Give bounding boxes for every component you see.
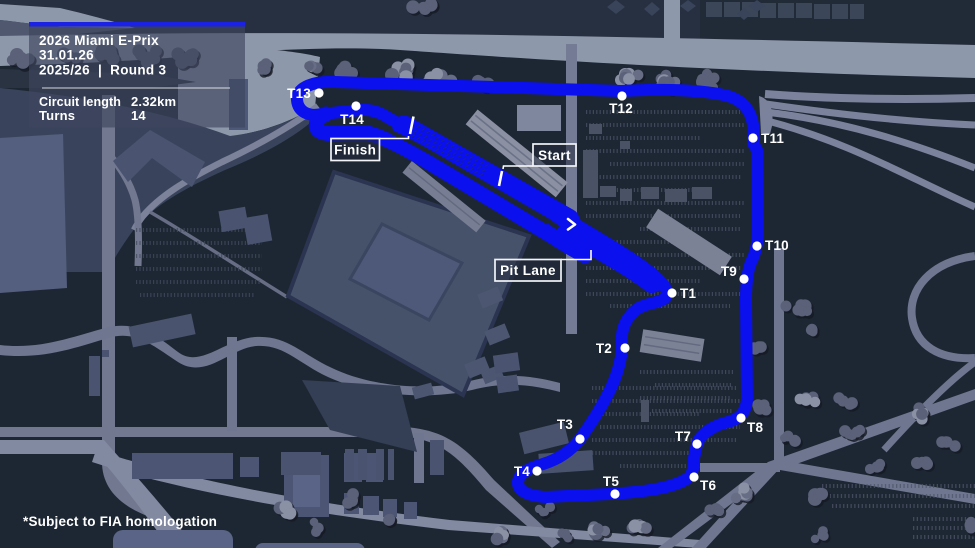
svg-text:T9: T9 bbox=[721, 264, 737, 279]
svg-text:T12: T12 bbox=[609, 101, 633, 116]
svg-text:Finish: Finish bbox=[334, 142, 376, 157]
svg-text:T1: T1 bbox=[680, 286, 696, 301]
svg-text:T10: T10 bbox=[765, 238, 789, 253]
svg-text:T5: T5 bbox=[603, 474, 619, 489]
svg-text:Pit Lane: Pit Lane bbox=[500, 263, 556, 278]
svg-text:31.01.26: 31.01.26 bbox=[39, 48, 94, 63]
svg-text:Start: Start bbox=[538, 148, 571, 163]
svg-text:T2: T2 bbox=[596, 341, 612, 356]
svg-text:2025/26 | Round 3: 2025/26 | Round 3 bbox=[39, 63, 166, 78]
svg-text:T8: T8 bbox=[747, 420, 763, 435]
svg-text:14: 14 bbox=[131, 108, 146, 123]
svg-text:T14: T14 bbox=[340, 112, 364, 127]
svg-text:T13: T13 bbox=[287, 86, 311, 101]
svg-text:2.32km: 2.32km bbox=[131, 94, 176, 109]
svg-text:T7: T7 bbox=[675, 429, 691, 444]
svg-text:T4: T4 bbox=[514, 464, 530, 479]
svg-text:*Subject to FIA homologation: *Subject to FIA homologation bbox=[23, 514, 217, 529]
svg-text:T3: T3 bbox=[557, 417, 573, 432]
svg-text:Turns: Turns bbox=[39, 108, 75, 123]
svg-text:T11: T11 bbox=[761, 131, 784, 146]
svg-text:Circuit length: Circuit length bbox=[39, 95, 121, 109]
svg-text:2026 Miami E-Prix: 2026 Miami E-Prix bbox=[39, 33, 159, 48]
svg-text:T6: T6 bbox=[700, 478, 716, 493]
